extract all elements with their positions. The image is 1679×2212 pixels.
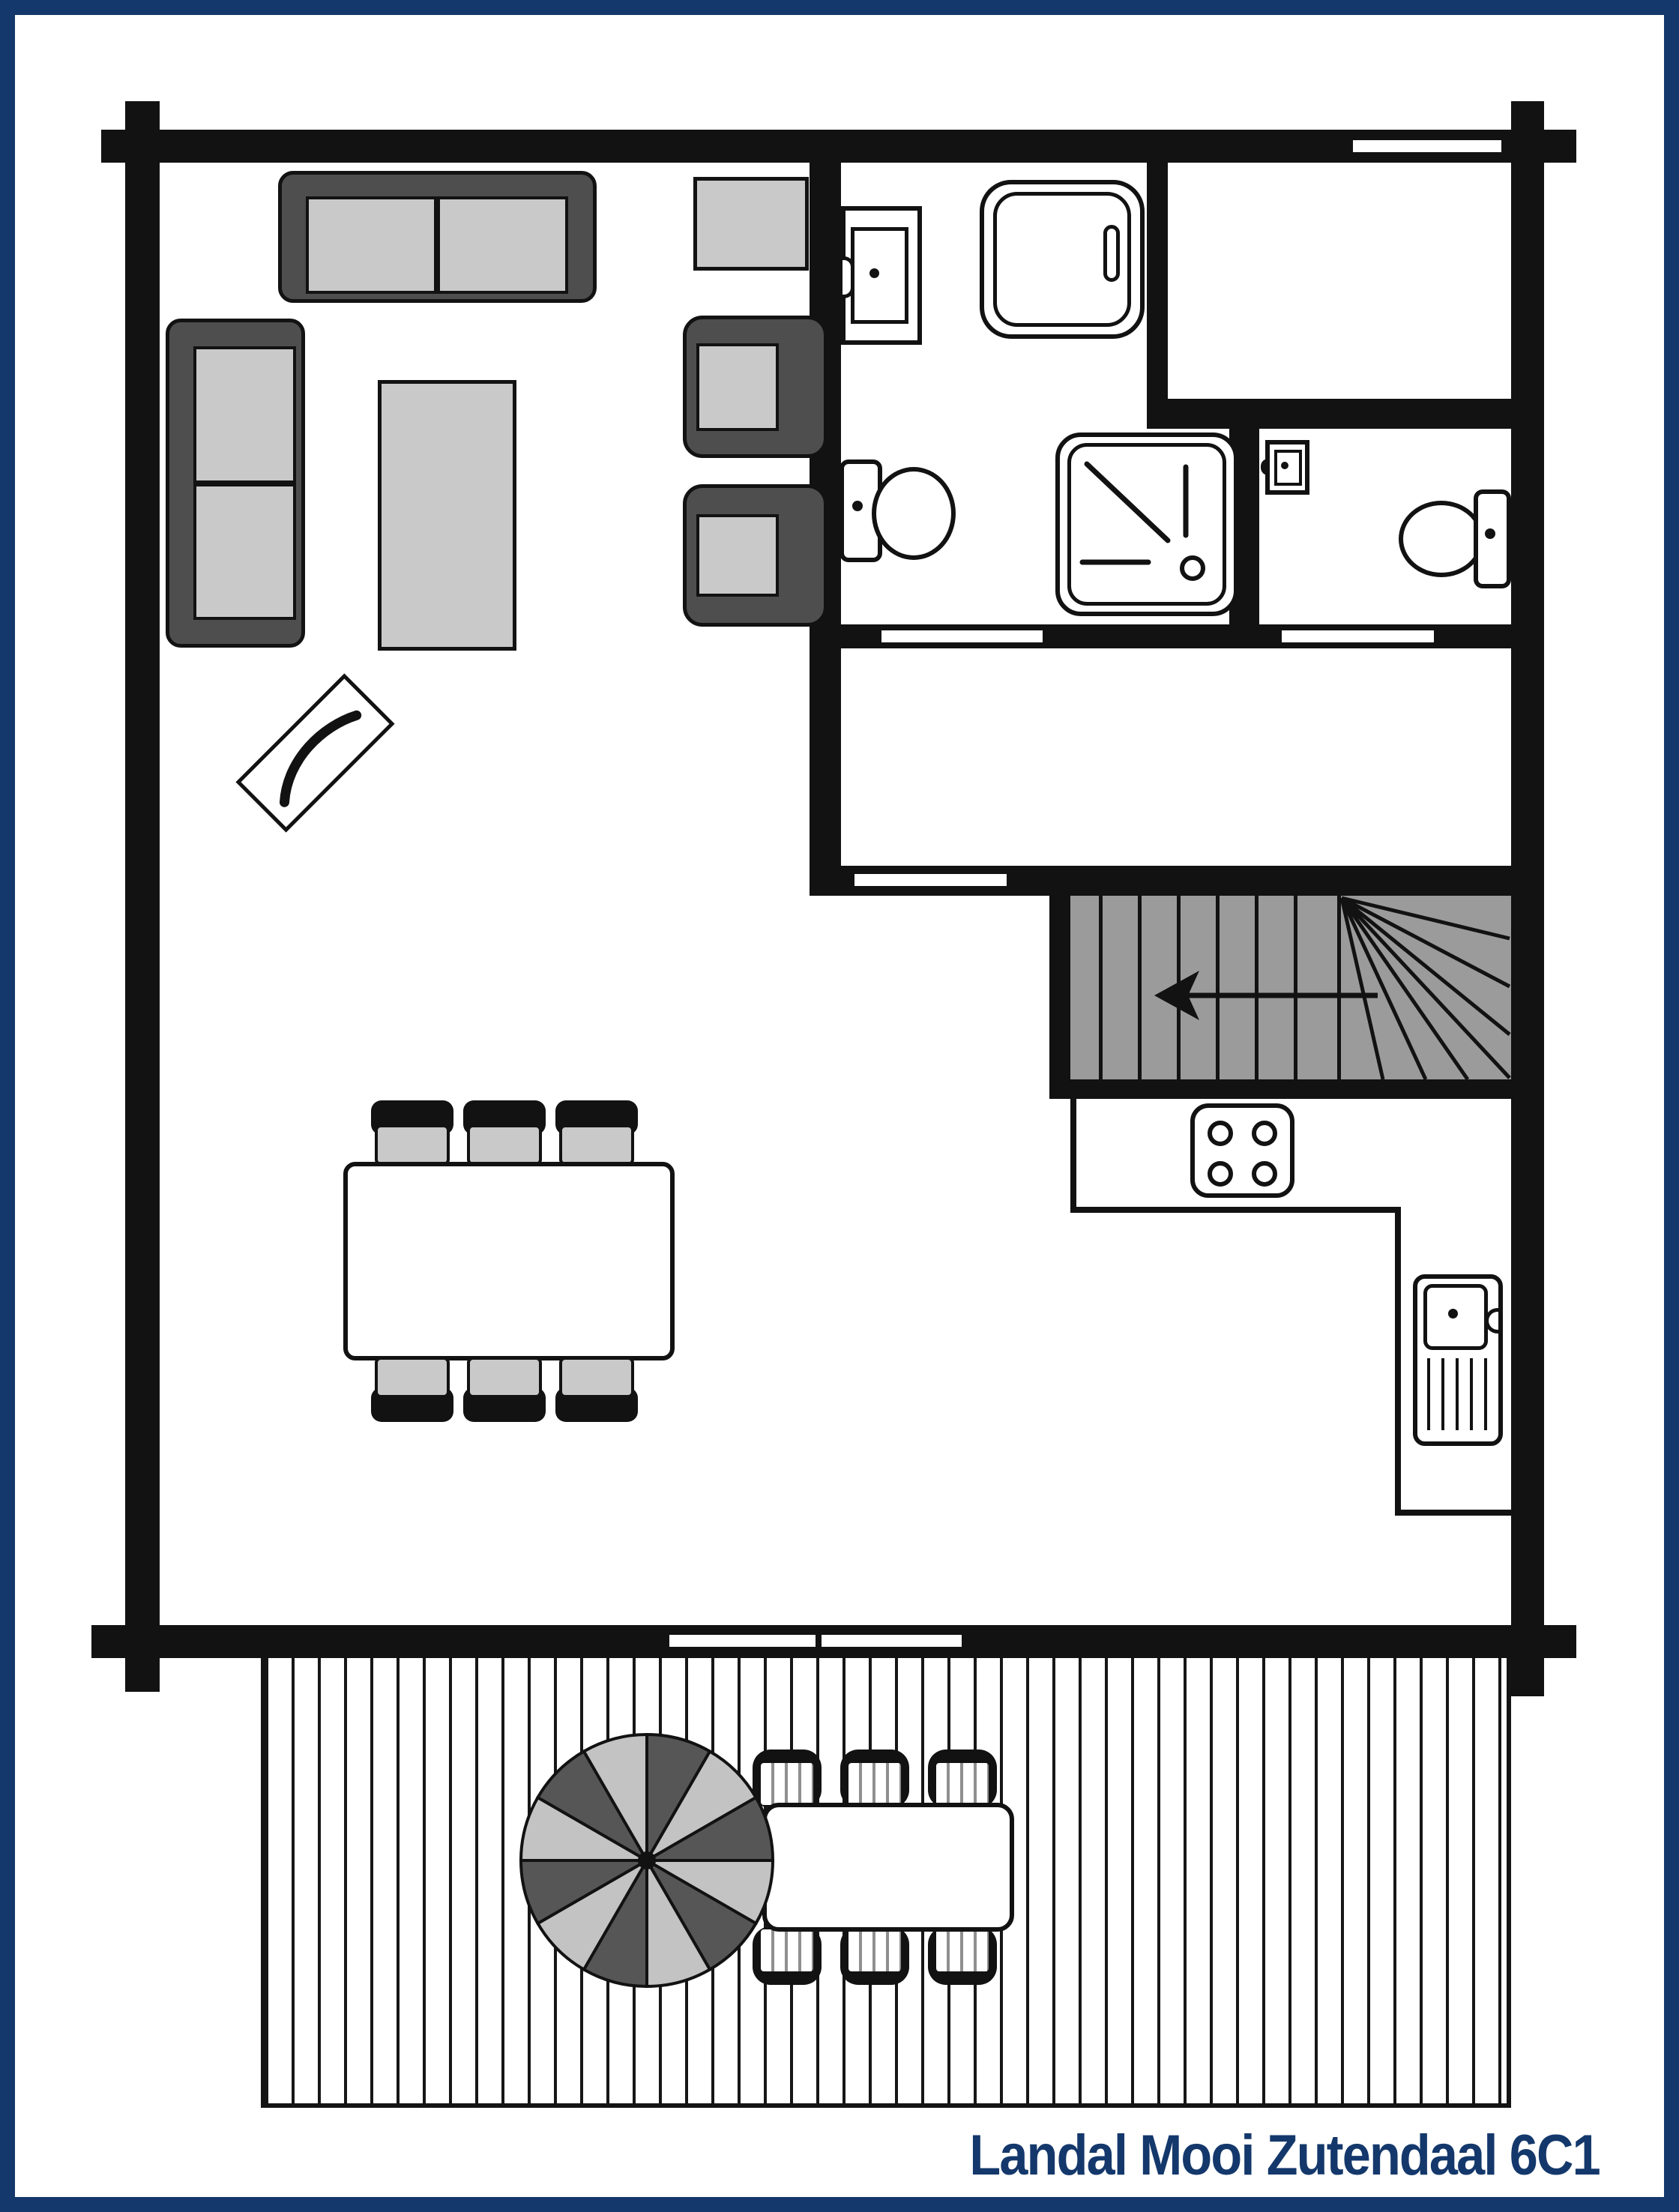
sofa-left-seat bbox=[193, 483, 296, 620]
parasol-icon bbox=[512, 1726, 782, 1995]
toilet-wc-bowl bbox=[1399, 501, 1484, 577]
door-hall bbox=[854, 874, 1007, 886]
bathtub-handle bbox=[1103, 225, 1120, 282]
outdoor-chair-seat bbox=[936, 1763, 989, 1805]
wc-radiator-dot bbox=[1281, 462, 1288, 469]
door-bathroom bbox=[881, 630, 1043, 642]
dining-chair-seat bbox=[559, 1357, 634, 1398]
dining-chair-seat bbox=[375, 1124, 450, 1166]
washbasin-faucet-icon bbox=[842, 256, 854, 298]
sofa-left-seat bbox=[193, 346, 296, 483]
toilet-wc-tank bbox=[1474, 489, 1511, 588]
outdoor-chair-seat bbox=[936, 1929, 989, 1971]
dining-chair-seat bbox=[375, 1357, 450, 1398]
wall-stair-left bbox=[1049, 896, 1070, 1099]
stove-burner bbox=[1252, 1121, 1277, 1146]
dining-table bbox=[343, 1162, 675, 1360]
toilet-bath-dot bbox=[852, 501, 863, 511]
room-storage bbox=[1168, 163, 1511, 399]
dining-chair-seat bbox=[467, 1357, 542, 1398]
dining-chair-seat bbox=[467, 1124, 542, 1166]
counter-edge-end bbox=[1395, 1510, 1511, 1516]
toilet-bath-bowl bbox=[872, 467, 956, 560]
wall-right bbox=[1511, 101, 1544, 1696]
sink-drainer-lines bbox=[1427, 1358, 1489, 1430]
plan-title: Landal Mooi Zutendaal 6C1 bbox=[969, 2123, 1600, 2188]
terrace-door-right bbox=[822, 1635, 962, 1647]
sofa-top-seat bbox=[437, 196, 568, 294]
sink-drain-dot bbox=[1448, 1309, 1458, 1319]
counter-edge-side bbox=[1395, 1207, 1401, 1516]
coffee-table bbox=[378, 380, 516, 651]
sofa-top-seat bbox=[306, 196, 437, 294]
stove-icon bbox=[1190, 1103, 1294, 1198]
outdoor-chair-seat bbox=[848, 1763, 901, 1805]
counter-edge-left bbox=[1070, 1099, 1076, 1213]
window-top-right bbox=[1353, 140, 1501, 152]
side-table bbox=[693, 177, 809, 271]
counter-edge-front bbox=[1070, 1207, 1401, 1213]
stair-winders-and-arrow bbox=[1070, 896, 1511, 1079]
stove-burner bbox=[1252, 1161, 1277, 1187]
room-hall bbox=[841, 648, 1511, 866]
outdoor-table bbox=[762, 1803, 1014, 1932]
terrace-door-left bbox=[669, 1635, 816, 1647]
armchair-seat bbox=[696, 514, 779, 597]
wall-left bbox=[125, 101, 160, 1692]
stove-burner bbox=[1208, 1161, 1233, 1187]
door-wc bbox=[1282, 630, 1434, 642]
washbasin-bowl bbox=[851, 227, 908, 324]
floor-plan-page: Landal Mooi Zutendaal 6C1 bbox=[0, 0, 1679, 2212]
stove-burner bbox=[1208, 1121, 1233, 1146]
outdoor-chair-seat bbox=[848, 1929, 901, 1971]
armchair-seat bbox=[696, 343, 779, 431]
dining-chair-seat bbox=[559, 1124, 634, 1166]
wc-radiator-inner bbox=[1274, 450, 1302, 486]
shower-detail-lines bbox=[1055, 433, 1238, 616]
toilet-wc-dot bbox=[1485, 528, 1495, 539]
wall-stair-bottom bbox=[1049, 1079, 1511, 1099]
washbasin-drain-dot bbox=[869, 268, 879, 278]
